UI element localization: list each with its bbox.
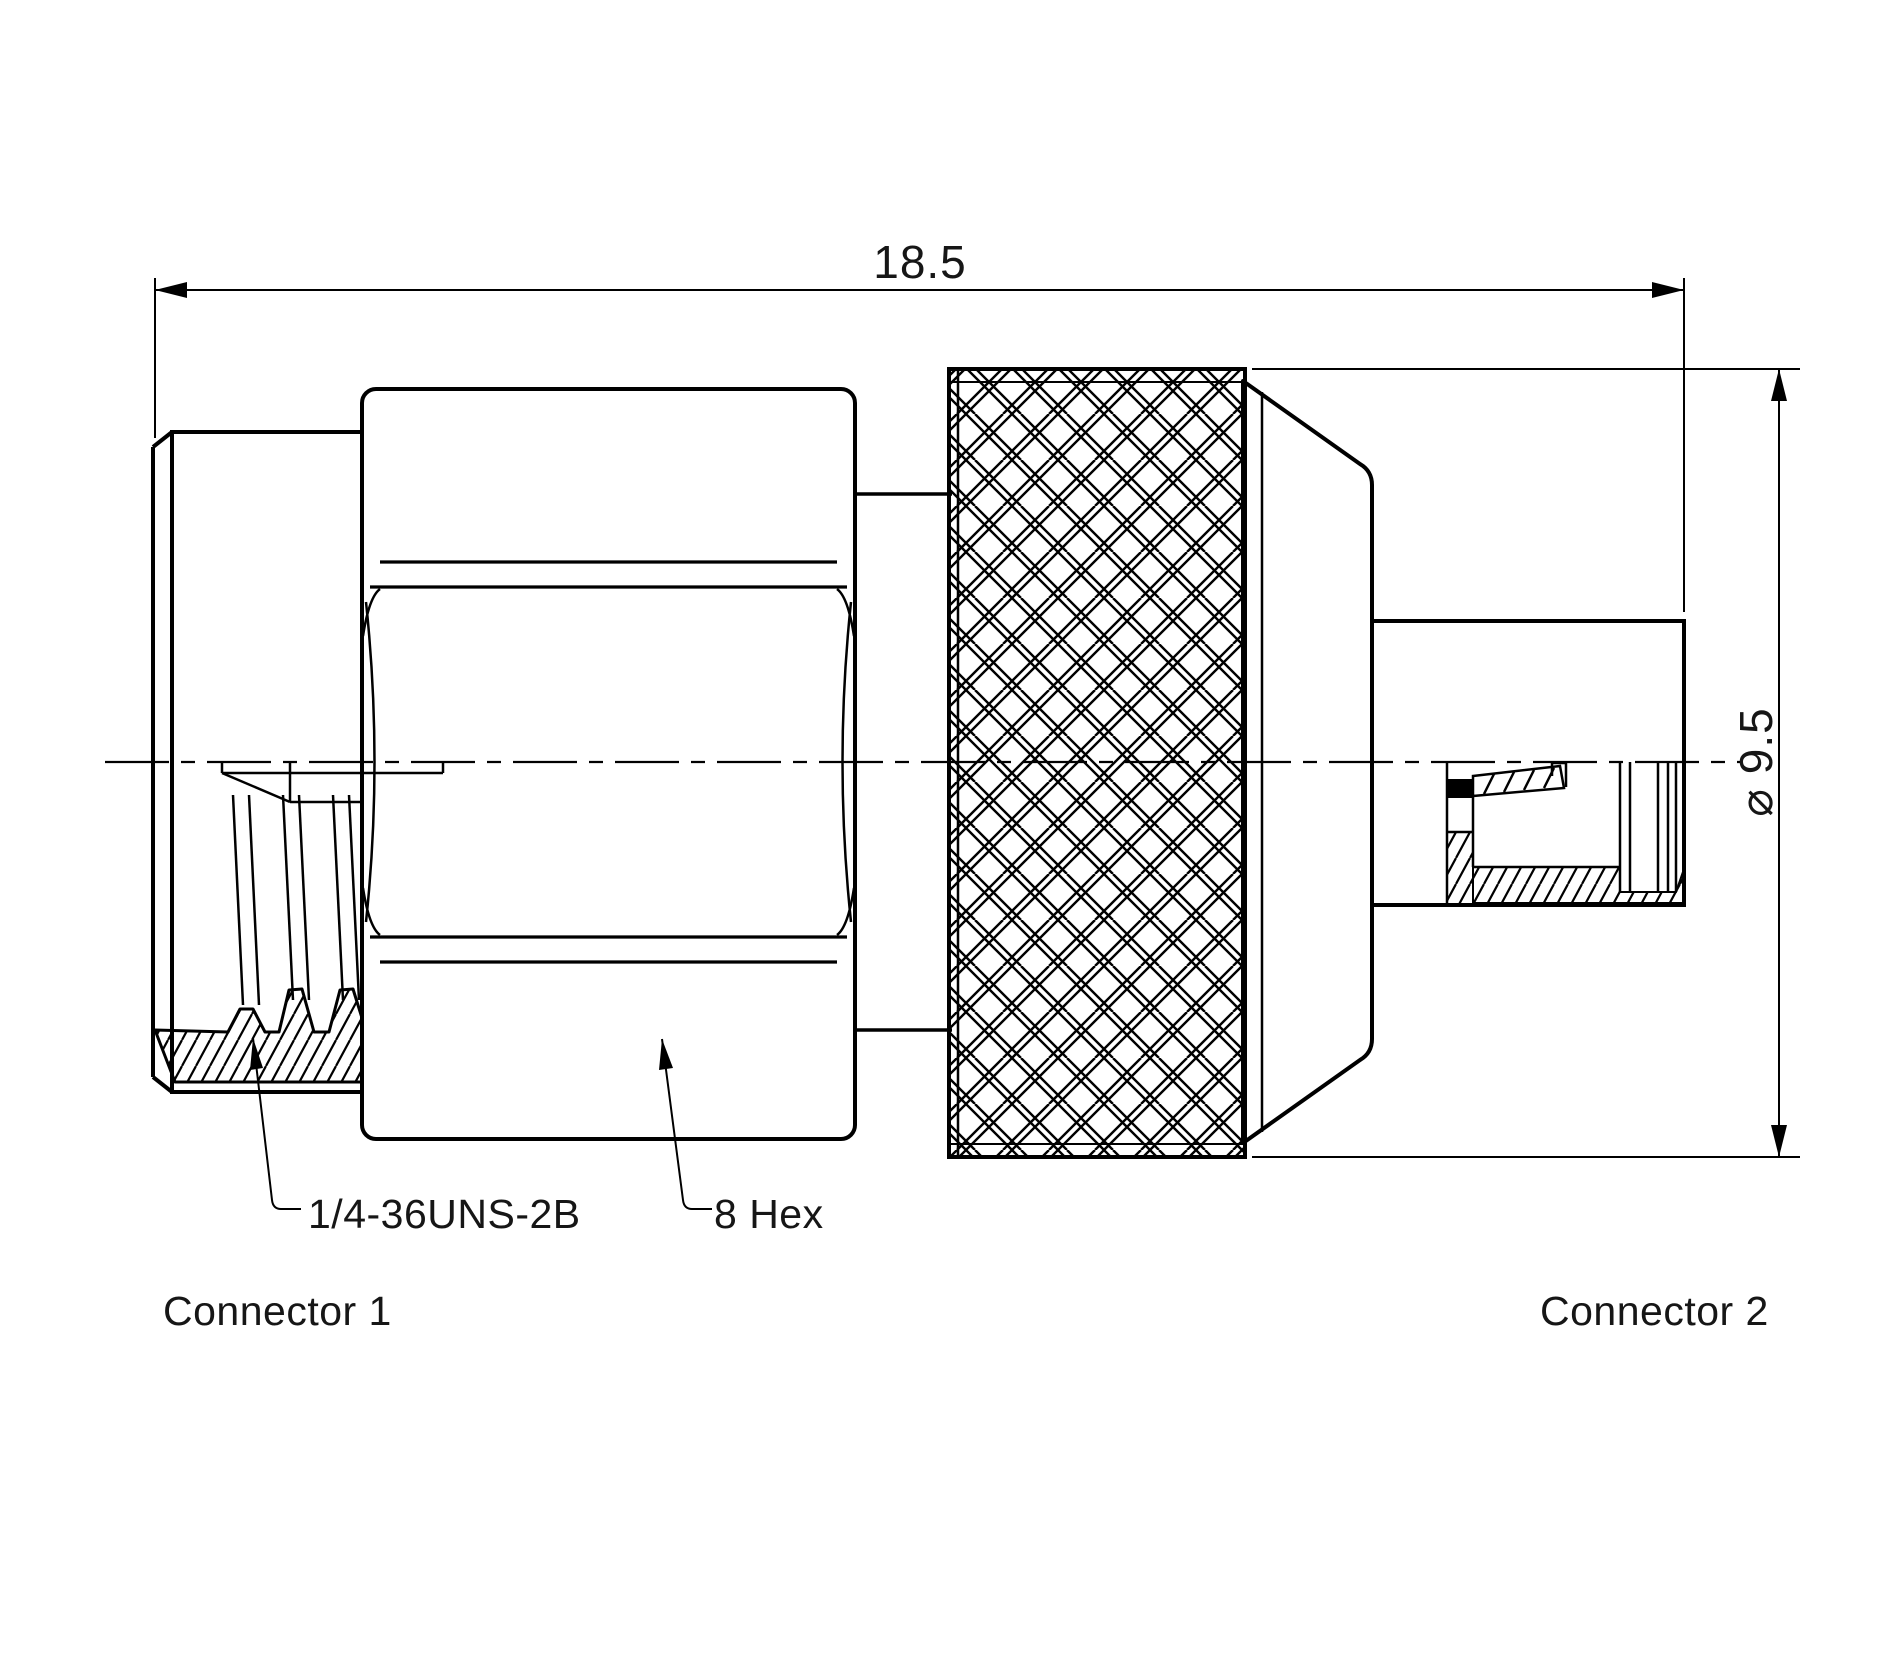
dimension-length-text: 18.5 (873, 236, 967, 288)
connector1-label: Connector 1 (163, 1288, 392, 1334)
arrow-right (1652, 282, 1684, 298)
technical-drawing-page: 18.5 ⌀ 9.5 1/4-36UNS-2B 8 Hex Connector … (0, 0, 1892, 1654)
arrow-down (1771, 1125, 1787, 1157)
thread-spec-label: 1/4-36UNS-2B (308, 1191, 581, 1237)
knurl (949, 369, 1245, 1157)
connector2-label: Connector 2 (1540, 1288, 1769, 1334)
connector-technical-drawing: 18.5 ⌀ 9.5 1/4-36UNS-2B 8 Hex Connector … (0, 0, 1892, 1654)
arrow-left (155, 282, 187, 298)
contact-section-solid (1447, 779, 1473, 798)
hex-nut (362, 389, 855, 1139)
arrow-up (1771, 369, 1787, 401)
hex-size-label: 8 Hex (714, 1191, 824, 1237)
